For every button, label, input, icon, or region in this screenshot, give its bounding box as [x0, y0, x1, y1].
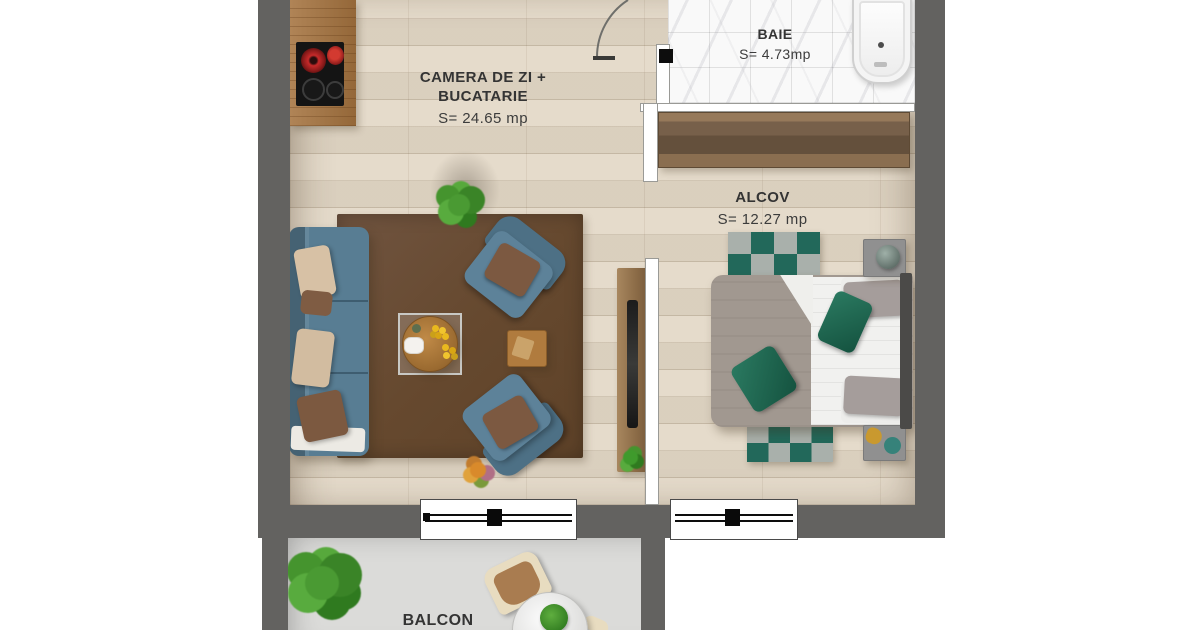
burner-back-left-icon [302, 78, 325, 101]
wall-left [258, 0, 290, 538]
label-alcove: ALCOV S= 12.27 mp [690, 188, 835, 229]
living-room-name-line2: BUCATARIE [393, 87, 573, 106]
tv-screen [627, 300, 638, 428]
wall-right [915, 0, 945, 538]
bathroom-area: S= 4.73mp [700, 46, 850, 63]
coffee-table-candle [412, 324, 421, 333]
balcony-table-plant-icon [540, 604, 568, 630]
bathroom-name: BAIE [700, 26, 850, 43]
living-room-name-line1: CAMERA DE ZI + [393, 68, 573, 87]
bed-teal-pillow-left [729, 344, 799, 415]
wall-bottom [258, 505, 945, 538]
bed-headboard [900, 273, 912, 429]
balcony-name: BALCON [378, 611, 498, 630]
bed-duvet-fold [773, 275, 813, 327]
sofa-pillow-beige-mid [291, 328, 336, 388]
nightstand-teal-decor-icon [884, 437, 901, 454]
label-living-room: CAMERA DE ZI + BUCATARIE S= 24.65 mp [393, 68, 573, 128]
window-alcove [670, 499, 798, 540]
burner-front-left-icon [301, 48, 326, 73]
potted-plant-icon [448, 194, 470, 216]
rug-flower-pot-icon [470, 462, 486, 478]
console-plant-icon [623, 450, 638, 465]
balcony-plant-icon [305, 566, 339, 600]
alcove-name: ALCOV [690, 188, 835, 207]
floor-plan: CAMERA DE ZI + BUCATARIE S= 24.65 mp BAI… [0, 0, 1200, 630]
wall-bathroom-bottom [640, 103, 915, 112]
label-bathroom: BAIE S= 4.73mp [700, 26, 850, 63]
sofa-pillow-brown-small [300, 289, 333, 316]
wall-balcony-right [641, 538, 665, 630]
window-alcove-mullion [725, 509, 740, 526]
bed [711, 275, 913, 427]
window-living [420, 499, 577, 540]
alcove-rug-bottom [747, 424, 833, 462]
coffee-table-fruit-2 [442, 344, 449, 351]
burner-front-right-icon [327, 46, 344, 65]
wall-partition-lower [645, 258, 659, 505]
alcove-area: S= 12.27 mp [690, 210, 835, 229]
bathtub-overflow-icon [874, 62, 887, 67]
wall-partition-upper [643, 103, 658, 182]
wardrobe [658, 112, 910, 168]
label-balcony: BALCON [378, 611, 498, 630]
wall-balcony-left [262, 538, 288, 630]
burner-back-right-icon [326, 81, 344, 99]
window-living-mullion [487, 509, 502, 526]
coffee-table-dish [404, 337, 424, 354]
window-living-tick [423, 513, 430, 521]
bathtub [852, 0, 912, 84]
door-swing-arc-icon [560, 0, 680, 80]
sofa-pillow-brown [296, 389, 350, 443]
coffee-table-fruit-1 [432, 325, 439, 332]
bathtub-drain-icon [878, 42, 884, 48]
alcove-rug-top [728, 232, 820, 276]
bed-gray-pillow-bottom [843, 375, 905, 416]
living-room-area: S= 24.65 mp [393, 109, 573, 128]
nightstand-lamp-icon [876, 245, 900, 269]
